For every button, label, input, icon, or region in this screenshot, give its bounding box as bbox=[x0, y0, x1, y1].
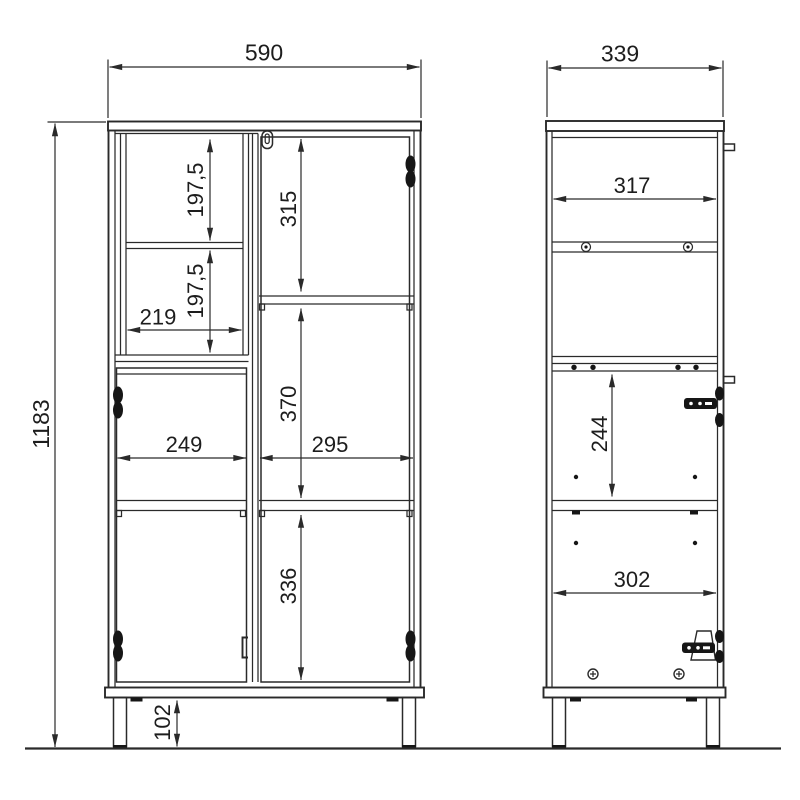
dim-lower-left-width: 249 bbox=[118, 432, 247, 458]
shelf-pin-icons bbox=[117, 304, 413, 517]
dim-hinge-spacing: 244 bbox=[587, 375, 612, 497]
dim-shelf-lower-height-label: 197,5 bbox=[183, 263, 208, 318]
dim-middle-right-height: 370 bbox=[276, 309, 301, 499]
dim-lower-right-width: 295 bbox=[260, 432, 413, 458]
dim-overall-height-label: 1183 bbox=[28, 399, 54, 448]
cam-lock-icon bbox=[262, 131, 273, 149]
side-bottom-panel bbox=[544, 688, 726, 698]
dim-middle-right-height-label: 370 bbox=[276, 386, 301, 423]
dim-overall-height: 1183 bbox=[28, 122, 106, 747]
front-bottom-panel bbox=[105, 688, 424, 698]
dim-leg-height-label: 102 bbox=[150, 704, 175, 741]
dim-overall-width: 590 bbox=[108, 40, 421, 119]
screw-head-icons-bottom bbox=[588, 669, 684, 679]
dim-upper-right-height-label: 315 bbox=[276, 191, 301, 228]
dim-shelf-lower-height: 197,5 bbox=[183, 251, 210, 353]
dim-upper-inner-depth: 317 bbox=[554, 173, 717, 199]
dim-lower-right-height-label: 336 bbox=[276, 568, 301, 605]
dim-upper-inner-depth-label: 317 bbox=[614, 173, 651, 198]
side-walls bbox=[547, 131, 724, 688]
dim-leg-height: 102 bbox=[150, 701, 177, 747]
dim-lower-right-width-label: 295 bbox=[312, 432, 349, 457]
wall-knob-icon-top bbox=[724, 144, 735, 151]
dim-shelf-upper-height: 197,5 bbox=[183, 140, 210, 241]
dim-hinge-spacing-label: 244 bbox=[587, 416, 612, 453]
side-middle-band bbox=[552, 357, 718, 372]
front-left-door bbox=[117, 368, 247, 682]
front-inner-structure bbox=[115, 134, 414, 683]
dim-overall-depth-label: 339 bbox=[601, 41, 639, 67]
side-top-panel bbox=[546, 121, 724, 131]
screw-head-icons-rail bbox=[582, 243, 693, 252]
dim-lower-right-height: 336 bbox=[276, 515, 301, 680]
side-view bbox=[544, 121, 735, 749]
dim-lower-inner-depth-label: 302 bbox=[614, 567, 651, 592]
dim-upper-right-height: 315 bbox=[276, 139, 301, 292]
side-inner-walls bbox=[552, 131, 718, 688]
front-inner-walls bbox=[115, 131, 414, 688]
dim-lower-left-width-label: 249 bbox=[166, 432, 203, 457]
front-side-walls bbox=[109, 131, 421, 688]
dim-shelf-upper-height-label: 197,5 bbox=[183, 162, 208, 217]
technical-drawing: 590 1183 197,5 197,5 219 315 370 bbox=[0, 0, 800, 800]
screw-head-icons-band bbox=[571, 365, 698, 370]
wall-knob-icon-mid bbox=[724, 377, 735, 384]
front-view bbox=[105, 122, 424, 749]
dim-shelf-width-label: 219 bbox=[140, 305, 177, 330]
front-dimensions: 590 1183 197,5 197,5 219 315 370 bbox=[28, 40, 421, 748]
technical-drawing-page: 590 1183 197,5 197,5 219 315 370 bbox=[0, 0, 800, 800]
side-shelf bbox=[552, 501, 718, 511]
dim-overall-width-label: 590 bbox=[245, 40, 283, 66]
dim-lower-inner-depth: 302 bbox=[554, 567, 717, 593]
dim-overall-depth: 339 bbox=[547, 41, 723, 118]
side-legs bbox=[552, 698, 720, 749]
front-top-panel bbox=[108, 122, 421, 131]
